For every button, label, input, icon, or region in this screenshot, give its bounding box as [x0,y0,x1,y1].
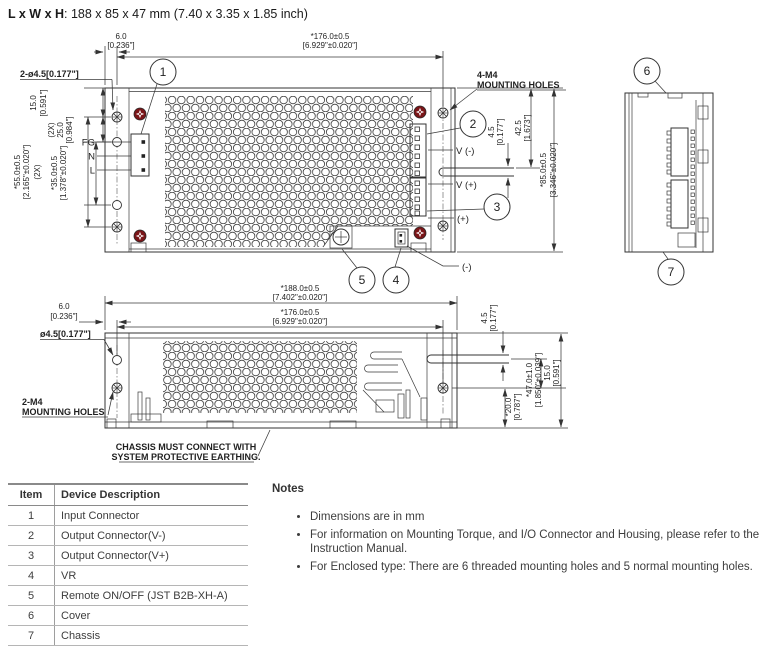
balloon-6: 6 [634,58,660,84]
item-description: Remote ON/OFF (JST B2B-XH-A) [55,586,249,606]
side-connector-upper [667,128,688,176]
m4-callout-line2: MOUNTING HOLES [477,80,560,90]
mounting-hole-icon [112,222,122,232]
table-row: 7Chassis [8,626,248,646]
balloon-3: 3 [484,194,510,220]
item-number: 5 [8,586,55,606]
balloon-1: 1 [150,59,176,85]
item-number: 2 [8,526,55,546]
item-description: VR [55,566,249,586]
device-description-table: Item Device Description 1Input Connector… [8,483,248,646]
mounting-hole-icon [112,383,122,393]
dim-6in: [0.236"] [107,41,134,50]
item-description: Chassis [55,626,249,646]
dim-35mm: *35.0±0.5 [50,155,59,190]
balloon-4: 4 [383,267,409,293]
table-row: 2Output Connector(V-) [8,526,248,546]
table-row: 1Input Connector [8,506,248,526]
input-connector [131,134,149,176]
table-header-row: Item Device Description [8,484,248,506]
m4-callout-line1: 4-M4 [477,70,498,80]
l-label: L [90,166,95,177]
screw-icon [414,227,426,239]
table-row: 3Output Connector(V+) [8,546,248,566]
earthing-note-line1: CHASSIS MUST CONNECT WITH [116,442,257,452]
balloon-7: 7 [658,259,684,285]
dim-15mm: 15.0 [543,365,552,381]
v-plus-label: V (+) [456,180,477,191]
dim-6mm: 6.0 [115,32,127,41]
screw-icon [414,106,426,118]
item-description: Output Connector(V-) [55,526,249,546]
item-description: Cover [55,606,249,626]
dim-15mm: 15.0 [29,95,38,111]
dim-47in: [1.850"±0.039"] [534,353,543,408]
side-tab [439,168,514,176]
dim-425mm: 42.5 [514,120,523,136]
dim-55mm: *55.0±0.5 [13,154,22,189]
plus-label: (+) [457,214,469,225]
dim-85mm: *85.0±0.5 [539,152,548,187]
dim-176mm: *176.0±0.5 [311,32,350,41]
remote-connector [395,229,408,247]
top-view: FG N L 1 [13,32,566,293]
notes-section: Notes Dimensions are in mm For informati… [272,483,772,577]
item-number: 4 [8,566,55,586]
n-label: N [88,152,95,163]
dim-176in: [6.929"±0.020"] [273,317,328,326]
m4-callout-line2: MOUNTING HOLES [22,407,105,417]
dim-47mm: *47.0±1.0 [525,362,534,397]
front-view: *188.0±0.5 [7.402"±0.020"] *176.0±0.5 [6… [22,284,568,462]
item-description: Output Connector(V+) [55,546,249,566]
item-number: 7 [8,626,55,646]
svg-text:7: 7 [668,265,675,279]
hole-callout: 2-ø4.5[0.177"] [20,69,79,79]
dim-6in: [0.236"] [50,312,77,321]
balloon-2: 2 [460,111,486,137]
m4-callout-line1: 2-M4 [22,397,43,407]
note-item: For Enclosed type: There are 6 threaded … [310,560,768,575]
dim-45in: [0.177"] [489,304,498,331]
dim-20mm: *20.0 [504,397,513,416]
side-pin-row [691,130,694,224]
note-item: For information on Mounting Torque, and … [310,528,768,557]
interior-bracket [363,352,427,420]
dim-176in: [6.929"±0.020"] [303,41,358,50]
dim-188mm: *188.0±0.5 [281,284,320,293]
svg-text:1: 1 [160,65,167,79]
dim-55qty: (2X) [33,164,42,179]
mechanical-drawing: FG N L 1 [0,0,774,480]
svg-text:4: 4 [393,273,400,287]
dim-25mm: 25.0 [56,122,65,138]
dim-45mm: 4.5 [480,312,489,324]
earthing-note-line2: SYSTEM PROTECTIVE EARTHING. [111,452,260,462]
dim-45mm: 4.5 [487,126,496,138]
side-view-body [625,93,713,252]
side-view: 6 7 [625,58,713,285]
dim-425in: [1.673"] [523,114,532,141]
svg-text:3: 3 [494,200,501,214]
item-number: 1 [8,506,55,526]
mounting-hole-icon [112,112,122,122]
dim-15in: [0.591"] [552,359,561,386]
minus-label: (-) [462,262,472,273]
notes-list: Dimensions are in mm For information on … [272,510,772,574]
dim-25in: [0.984"] [65,116,74,143]
dim-188in: [7.402"±0.020"] [273,293,328,302]
col-header-description: Device Description [55,484,249,506]
balloon-5: 5 [349,267,375,293]
table-row: 4VR [8,566,248,586]
svg-text:5: 5 [359,273,366,287]
dim-45in: [0.177"] [496,118,505,145]
screw-icon [134,230,146,242]
mounting-hole-icon [438,108,448,118]
fg-label: FG [82,138,95,149]
chassis-hole-icon [113,201,122,210]
col-header-item: Item [8,484,55,506]
vent-perforation [163,341,357,413]
dim-6mm: 6.0 [58,302,70,311]
table-row: 6Cover [8,606,248,626]
item-description: Input Connector [55,506,249,526]
dim-15in: [0.591"] [39,89,48,116]
v-minus-label: V (-) [456,146,474,157]
svg-text:6: 6 [644,64,651,78]
dim-85in: [3.346"±0.020"] [549,143,558,198]
chassis-hole-icon [113,356,122,365]
note-item: Dimensions are in mm [310,510,768,525]
table-row: 5Remote ON/OFF (JST B2B-XH-A) [8,586,248,606]
mounting-hole-icon [438,221,448,231]
vent-perforation [165,96,413,247]
dim-20in: [0.787"] [513,393,522,420]
hole-callout: ø4.5[0.177"] [40,329,91,339]
dim-25qty: (2X) [47,122,56,137]
screw-icon [134,108,146,120]
side-tab [427,355,509,363]
dim-176mm: *176.0±0.5 [281,308,320,317]
item-number: 6 [8,606,55,626]
svg-text:2: 2 [470,117,477,131]
dim-55in: [2.165"±0.020"] [22,145,31,200]
notes-heading: Notes [272,483,772,495]
mounting-hole-icon [438,383,448,393]
side-connector-lower [667,180,688,228]
dim-35in: [1.378"±0.020"] [59,146,68,201]
item-number: 3 [8,546,55,566]
